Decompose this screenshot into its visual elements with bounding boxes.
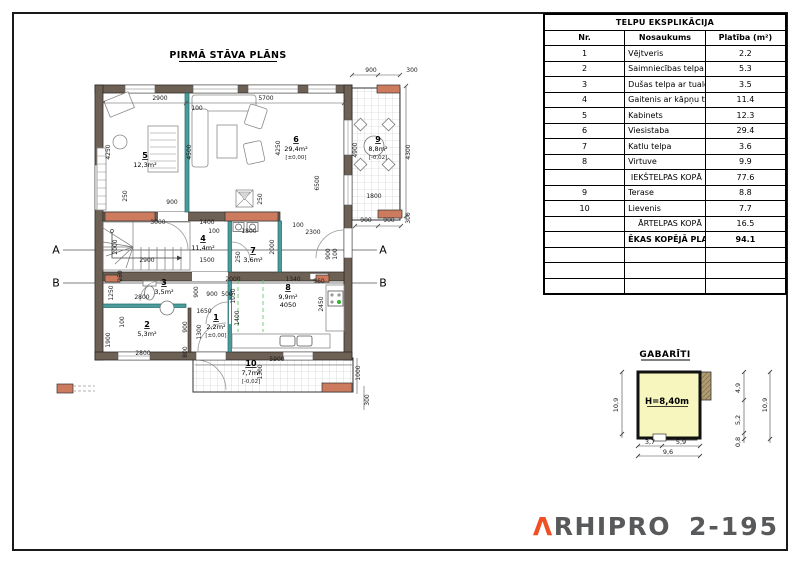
- dimension-label: 4250: [105, 144, 112, 159]
- dimension-label: 1900: [105, 332, 112, 347]
- room-level: [±0,00]: [205, 333, 226, 339]
- dimension-label: 1250: [108, 285, 115, 300]
- table-row: 5Kabinets12.3: [544, 108, 786, 124]
- dimension-label: 900: [182, 321, 189, 333]
- logo-mark: Λ: [533, 512, 554, 541]
- section-letter: A: [379, 244, 387, 257]
- room-number: 9: [375, 135, 381, 144]
- room-number: 6: [293, 135, 299, 144]
- gabariti-dimension-label: 5,9: [676, 438, 686, 446]
- gabariti-height: H=8,40m: [645, 397, 689, 407]
- dimension-label: 250: [235, 251, 242, 263]
- room-number: 10: [245, 359, 257, 368]
- row-nr: [544, 170, 625, 186]
- dimension-label: 100: [292, 222, 304, 229]
- dimension-label: 1800: [241, 228, 256, 235]
- section-letter: A: [52, 244, 60, 257]
- dimension-label: 800: [182, 346, 189, 358]
- dimension-label: 960: [313, 278, 325, 285]
- gabariti: GABARĪTI H=8,40m 10,94,95,20,810,93,75,9…: [612, 349, 772, 458]
- gabariti-dimension-label: 10,9: [612, 398, 620, 412]
- room-area: 12,3m²: [133, 161, 157, 169]
- row-area: 5.3: [705, 61, 786, 77]
- row-name: [625, 263, 706, 279]
- dimension-label: 250: [122, 190, 129, 202]
- row-area: 9.9: [705, 154, 786, 170]
- row-area: 11.4: [705, 92, 786, 108]
- dimension-label: 4300: [405, 144, 412, 159]
- room-number: 4: [200, 234, 206, 243]
- table-column-header: Platība (m²): [705, 30, 786, 46]
- table-row: 8Virtuve9.9: [544, 154, 786, 170]
- plan-title: PIRMĀ STĀVA PLĀNS: [169, 50, 286, 61]
- row-name: Katlu telpa: [625, 139, 706, 155]
- gabariti-dimension-label: 10,9: [761, 398, 769, 412]
- row-nr: 8: [544, 154, 625, 170]
- row-name: [625, 278, 706, 294]
- dimension-label: 100: [332, 248, 339, 260]
- dimension-label: 1300: [196, 324, 203, 339]
- row-name: Lievenis: [625, 201, 706, 217]
- gabariti-dimension-label: 4,9: [734, 383, 742, 393]
- row-nr: [544, 278, 625, 294]
- room-extra: 4050: [280, 301, 297, 309]
- row-name: Kabinets: [625, 108, 706, 124]
- row-nr: 1: [544, 46, 625, 62]
- room-area: 2,2m²: [206, 323, 226, 331]
- dimension-label: 900: [383, 217, 395, 224]
- table-row: 9Terase8.8: [544, 185, 786, 201]
- row-nr: 9: [544, 185, 625, 201]
- row-nr: 7: [544, 139, 625, 155]
- dimension-label: 300: [405, 212, 412, 224]
- room-table: TELPU EKSPLIKĀCIJANr.NosaukumsPlatība (m…: [543, 13, 787, 295]
- logo-text: RHIPRO: [554, 512, 671, 541]
- row-nr: 6: [544, 123, 625, 139]
- dimension-label: 900: [206, 291, 218, 298]
- room-number: 5: [142, 151, 148, 160]
- room-level: [±0,00]: [285, 155, 306, 161]
- dimension-label: 1800: [366, 193, 381, 200]
- dimension-label: 1340: [285, 276, 300, 283]
- room-number: 1: [213, 313, 219, 322]
- dimension-label: 300: [364, 394, 371, 406]
- table-row: ĒKAS KOPĒJĀ PLATĪBA94.1: [544, 232, 786, 248]
- row-name: [625, 247, 706, 263]
- row-nr: 3: [544, 77, 625, 93]
- dimension-label: 100: [208, 228, 220, 235]
- dimension-label: 2000: [269, 239, 276, 254]
- table-row: 10Lievenis7.7: [544, 201, 786, 217]
- dimension-label: 300: [406, 67, 418, 74]
- row-name: IEKŠTELPAS KOPĀ: [625, 170, 706, 186]
- dimension-label: 100: [119, 316, 126, 328]
- row-area: 77.6: [705, 170, 786, 186]
- dimension-label: 4900: [352, 142, 359, 157]
- row-area: 7.7: [705, 201, 786, 217]
- room-area: 3,6m²: [243, 256, 263, 264]
- dimension-label: 2000: [112, 239, 119, 254]
- gabariti-dimension-label: 3,7: [645, 438, 655, 446]
- row-nr: [544, 247, 625, 263]
- door-arcs: [140, 222, 344, 351]
- row-area: [705, 263, 786, 279]
- room-area: 8,8m²: [368, 145, 388, 153]
- dimension-label: 900: [365, 67, 377, 74]
- row-area: 3.6: [705, 139, 786, 155]
- row-name: Saimniecības telpa: [625, 61, 706, 77]
- table-row: ĀRTELPAS KOPĀ16.5: [544, 216, 786, 232]
- gabariti-title: GABARĪTI: [639, 349, 690, 360]
- logo-number: 2-195: [689, 512, 779, 541]
- row-area: 16.5: [705, 216, 786, 232]
- section-letter: B: [52, 277, 60, 290]
- row-area: 3.5: [705, 77, 786, 93]
- room-area: 9,9m²: [278, 293, 298, 301]
- row-area: 12.3: [705, 108, 786, 124]
- row-name: Viesistaba: [625, 123, 706, 139]
- row-area: 94.1: [705, 232, 786, 248]
- room-explication: TELPU EKSPLIKĀCIJANr.NosaukumsPlatība (m…: [543, 13, 787, 295]
- room-area: 7,7m²: [241, 369, 261, 377]
- room-area: 5,3m²: [137, 330, 157, 338]
- row-name: Vējtveris: [625, 46, 706, 62]
- dimension-label: 250: [117, 270, 124, 282]
- dimension-label: 900: [166, 199, 178, 206]
- dimension-label: 2900: [152, 95, 167, 102]
- dimension-label: 100: [191, 105, 203, 112]
- dimension-label: 1000: [355, 365, 362, 380]
- logo: ΛRHIPRO2-195: [563, 509, 779, 543]
- row-nr: 4: [544, 92, 625, 108]
- room-number: 2: [144, 320, 150, 329]
- room-level: [-0,02]: [369, 155, 388, 161]
- dimension-label: 1500: [199, 257, 214, 264]
- dimension-label: 1050: [230, 288, 237, 303]
- drawing-sheet: PIRMĀ STĀVA PLĀNS: [0, 0, 800, 565]
- gabariti-dimension-label: 5,2: [734, 415, 742, 425]
- table-column-header: Nosaukums: [625, 30, 706, 46]
- stove: [328, 291, 343, 306]
- dimension-label: 900: [325, 248, 332, 260]
- row-area: 2.2: [705, 46, 786, 62]
- table-row: 1Vējtveris2.2: [544, 46, 786, 62]
- table-row: 2Saimniecības telpa5.3: [544, 61, 786, 77]
- porch: [193, 358, 353, 392]
- gabariti-dimension-label: 0,8: [734, 437, 742, 447]
- row-nr: 5: [544, 108, 625, 124]
- table-title: TELPU EKSPLIKĀCIJA: [544, 14, 786, 30]
- dimension-label: 2450: [318, 296, 325, 311]
- dimension-label: 1400: [234, 310, 241, 325]
- row-name: Gaitenis ar kāpņu telpu: [625, 92, 706, 108]
- table-column-header: Nr.: [544, 30, 625, 46]
- room-number: 8: [285, 283, 291, 292]
- table-row: 3Dušas telpa ar tualeti3.5: [544, 77, 786, 93]
- dimension-label: 2900: [139, 257, 154, 264]
- room-area: 29,4m²: [284, 145, 308, 153]
- gabariti-dimension-label: 9,6: [663, 448, 673, 456]
- row-area: 8.8: [705, 185, 786, 201]
- dimension-label: 2800: [134, 294, 149, 301]
- row-name: ĒKAS KOPĒJĀ PLATĪBA: [625, 232, 706, 248]
- dimension-label: 900: [360, 217, 372, 224]
- room-number: 3: [161, 278, 167, 287]
- dimension-label: 3000: [150, 219, 165, 226]
- section-letter: B: [379, 277, 387, 290]
- dimension-label: 5700: [258, 95, 273, 102]
- dimension-label: 4250: [275, 140, 282, 155]
- dimension-label: 2800: [135, 350, 150, 357]
- row-name: Terase: [625, 185, 706, 201]
- row-nr: [544, 216, 625, 232]
- row-area: [705, 247, 786, 263]
- row-name: Dušas telpa ar tualeti: [625, 77, 706, 93]
- room-area: 3,5m²: [154, 288, 174, 296]
- row-nr: 10: [544, 201, 625, 217]
- row-nr: [544, 232, 625, 248]
- row-name: Virtuve: [625, 154, 706, 170]
- table-row: 6Viesistaba29.4: [544, 123, 786, 139]
- dimension-label: 2000: [225, 276, 240, 283]
- dimension-label: 1650: [196, 308, 211, 315]
- dimension-label: 5900: [269, 356, 284, 363]
- plan-title-group: PIRMĀ STĀVA PLĀNS: [169, 50, 286, 62]
- row-name: ĀRTELPAS KOPĀ: [625, 216, 706, 232]
- table-row: [544, 263, 786, 279]
- table-row: 7Katlu telpa3.6: [544, 139, 786, 155]
- room6-furniture: [192, 95, 268, 207]
- room-number: 7: [250, 246, 256, 255]
- table-row: [544, 278, 786, 294]
- row-area: [705, 278, 786, 294]
- dimension-label: 2300: [305, 229, 320, 236]
- table-row: [544, 247, 786, 263]
- dimension-label: 6500: [314, 175, 321, 190]
- dimension-label: 4500: [186, 144, 193, 159]
- room-level: [-0,02]: [242, 379, 261, 385]
- dimension-label: 1400: [199, 219, 214, 226]
- dimension-label: 250: [257, 193, 264, 205]
- row-area: 29.4: [705, 123, 786, 139]
- table-row: IEKŠTELPAS KOPĀ77.6: [544, 170, 786, 186]
- dimension-label: 900: [193, 286, 200, 298]
- table-row: 4Gaitenis ar kāpņu telpu11.4: [544, 92, 786, 108]
- row-nr: 2: [544, 61, 625, 77]
- row-nr: [544, 263, 625, 279]
- room-area: 11,4m²: [191, 244, 215, 252]
